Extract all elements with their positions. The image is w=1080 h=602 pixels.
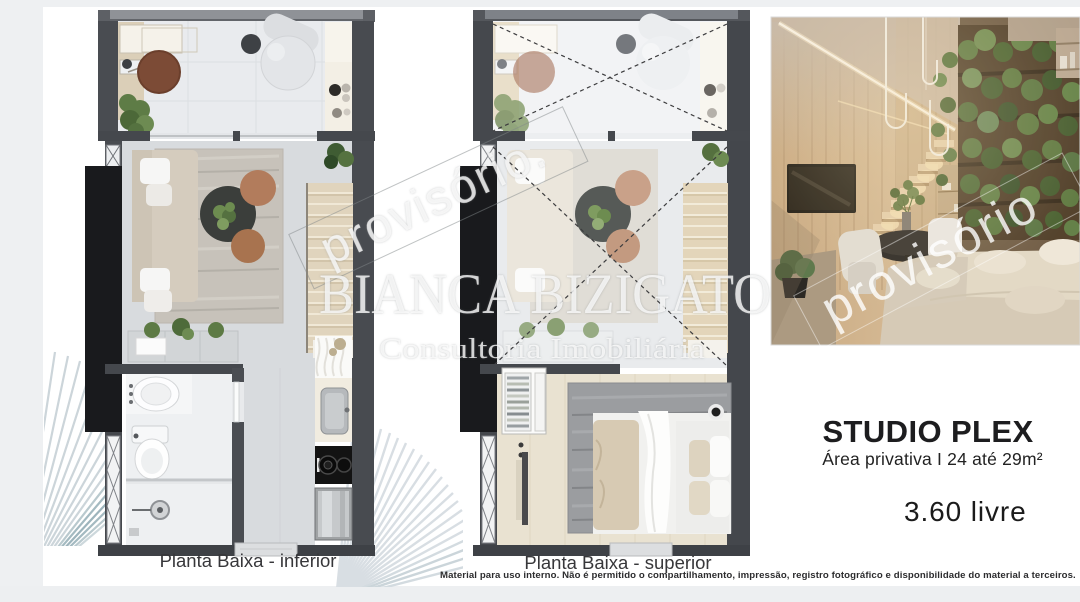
svg-text:BIANCA BIZIGATO: BIANCA BIZIGATO: [319, 263, 771, 326]
svg-text:Consultoria Imobiliária: Consultoria Imobiliária: [379, 334, 706, 365]
